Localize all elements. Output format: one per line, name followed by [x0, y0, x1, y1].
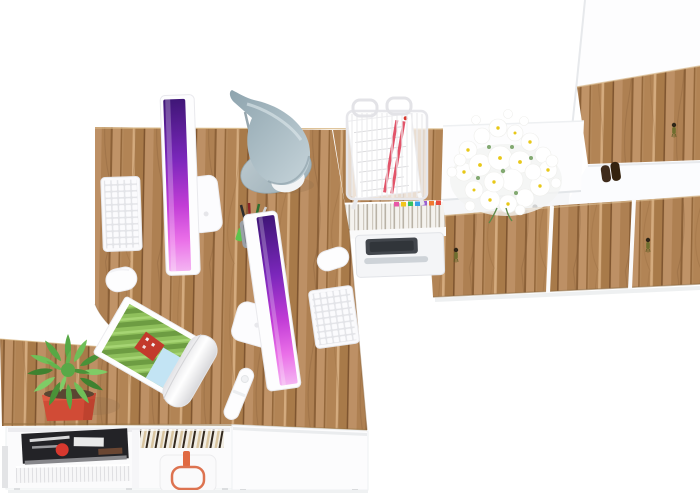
keyboard-2: [308, 285, 360, 349]
door-key-icon: [454, 248, 458, 263]
keyboard-1: [101, 176, 143, 251]
tray-wires: [352, 113, 422, 197]
cabinet-key-icon: [672, 123, 676, 138]
tall-cabinet: [564, 0, 700, 207]
paper-stack: [16, 464, 130, 483]
handbag: [160, 451, 216, 492]
printer: [355, 232, 444, 277]
door-key-icon: [646, 238, 650, 253]
magazine-stack: [21, 428, 128, 465]
drawer-unit: [232, 425, 368, 492]
books-row: [140, 429, 224, 448]
workspace-render: [0, 0, 700, 494]
paper-tray: [347, 98, 427, 209]
tray-papers: [348, 114, 421, 199]
